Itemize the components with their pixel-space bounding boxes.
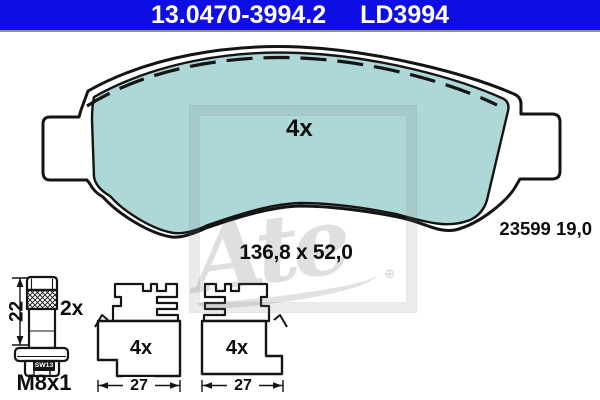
pad-dimensions-label: 136,8 x 52,0 [229, 241, 363, 264]
clip-left-width-label: 27 [123, 377, 155, 395]
pad-wva-thickness-label: 23599 19,0 [498, 219, 592, 239]
clip-right-quantity-label: 4x [217, 337, 257, 359]
clip-right-width-label: 27 [227, 377, 259, 395]
pad-quantity-label: 4x [286, 116, 313, 142]
catalog-illustration: 13.0470-3994.2 LD3994 [0, 0, 600, 400]
bolt-length-label: 22 [8, 290, 29, 332]
technical-drawing [0, 0, 600, 400]
bolt-thread-label: M8x1 [15, 371, 73, 395]
bolt-wrench-size-label: SW13 [33, 361, 55, 371]
clip-left-quantity-label: 4x [121, 337, 161, 359]
bolt-quantity-label: 2x [60, 297, 83, 320]
